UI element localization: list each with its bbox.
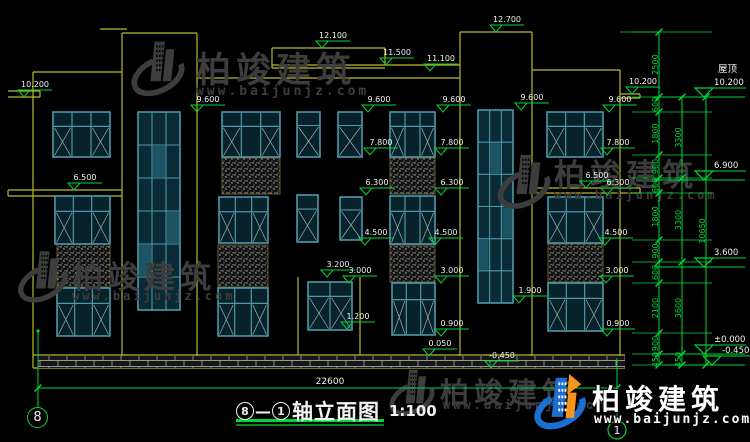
dim-chain-value: 900 xyxy=(651,159,660,174)
title-axis-circle-1: 1 xyxy=(272,402,290,420)
level-marker-triangle xyxy=(360,188,372,195)
level-marker-triangle xyxy=(68,183,80,190)
level-marker-value: 9.600 xyxy=(368,95,391,104)
level-marker-triangle xyxy=(601,188,613,195)
level-marker-triangle xyxy=(359,238,371,245)
level-marker-triangle xyxy=(515,103,527,110)
level-marker-triangle xyxy=(435,329,447,336)
level-marker-value: 6.500 xyxy=(586,171,609,180)
title-scale: 1:100 xyxy=(389,402,437,420)
dim-chain-value: 3300 xyxy=(674,127,683,147)
dim-chain-value: 600 xyxy=(651,97,660,112)
level-marker-value: 3.000 xyxy=(441,266,464,275)
title-text: 轴立面图 xyxy=(292,396,380,426)
level-marker-value: 6.300 xyxy=(441,178,464,187)
level-marker-value: 1.200 xyxy=(347,312,370,321)
level-marker-value: 6.500 xyxy=(74,173,97,182)
level-marker-triangle xyxy=(626,87,638,94)
level-marker-triangle xyxy=(18,90,30,97)
dim-chain-value: 10650 xyxy=(698,218,707,243)
level-marker-value: 0.900 xyxy=(607,319,630,328)
level-marker-triangle xyxy=(435,148,447,155)
level-marker-triangle xyxy=(380,58,392,65)
dim-chain-value: 1800 xyxy=(651,206,660,226)
level-marker-value: 0.900 xyxy=(441,319,464,328)
cad-elevation-canvas: 柏竣建筑www.baijunjz.com 柏竣建筑www.baijunjz.co… xyxy=(0,0,750,442)
level-marker-value: 1.900 xyxy=(519,286,542,295)
axis-grid-bubble-8: 8 xyxy=(27,407,48,428)
level-marker-value: -0.450 xyxy=(489,351,515,360)
dim-chain-value: 2100 xyxy=(651,298,660,318)
level-marker-triangle xyxy=(364,148,376,155)
level-marker-triangle xyxy=(429,238,441,245)
level-marker-value: 7.800 xyxy=(607,138,630,147)
level-marker-value: 3.200 xyxy=(327,260,350,269)
level-marker-value: 3.000 xyxy=(606,266,629,275)
axis-grid-number: 8 xyxy=(33,410,41,425)
dim-chain-value: 900 xyxy=(651,243,660,258)
level-marker-triangle xyxy=(601,329,613,336)
level-marker-value: 4.500 xyxy=(365,228,388,237)
dim-chain-value: 900 xyxy=(651,336,660,351)
level-marker-value: ±0.000 xyxy=(714,335,745,345)
level-marker-triangle xyxy=(321,270,333,277)
level-marker-value: 3.600 xyxy=(714,248,738,258)
level-marker-value: 7.800 xyxy=(441,138,464,147)
level-marker-triangle xyxy=(424,64,436,71)
level-marker-value: 4.500 xyxy=(605,228,628,237)
level-marker-value: 12.100 xyxy=(319,31,347,40)
level-marker-value: 11.500 xyxy=(383,48,411,57)
level-marker-value: 6.900 xyxy=(714,161,738,171)
level-marker-triangle xyxy=(599,238,611,245)
drawing-title: 8 — 1 轴立面图 1:100 xyxy=(236,396,437,426)
title-axis-circle-8: 8 xyxy=(236,402,254,420)
axis-grid-number: 1 xyxy=(614,424,621,437)
level-marker-triangle xyxy=(490,25,502,32)
axis-grid-dot xyxy=(36,329,39,332)
level-marker-triangle xyxy=(437,105,449,112)
level-marker-value: 9.600 xyxy=(197,95,220,104)
level-marker-value: 11.100 xyxy=(427,54,455,63)
level-marker-triangle xyxy=(695,345,713,354)
level-marker-triangle xyxy=(601,148,613,155)
dim-chain-value: 3300 xyxy=(674,210,683,230)
dim-chain-value: 3600 xyxy=(674,298,683,318)
level-marker-value: 6.300 xyxy=(366,178,389,187)
level-marker-value: 3.000 xyxy=(349,266,372,275)
level-marker-triangle xyxy=(341,322,353,329)
level-marker-triangle xyxy=(580,181,592,188)
level-marker-triangle xyxy=(435,188,447,195)
roof-label: 屋顶 xyxy=(718,64,738,75)
level-marker-triangle xyxy=(513,296,525,303)
level-marker-value: 10.200 xyxy=(21,80,49,89)
level-marker-value: -0.450 xyxy=(722,346,749,356)
level-marker-value: 6.300 xyxy=(607,178,630,187)
dim-chain-value: 2500 xyxy=(651,54,660,74)
title-dash: — xyxy=(255,402,271,421)
overall-dim-value: 22600 xyxy=(316,377,345,387)
level-marker-triangle xyxy=(603,105,615,112)
level-marker-triangle xyxy=(362,105,374,112)
level-marker-value: 10.200 xyxy=(714,78,744,88)
level-marker-value: 12.700 xyxy=(493,15,521,24)
level-marker-value: 10.200 xyxy=(629,77,657,86)
level-marker-triangle xyxy=(695,171,713,180)
level-marker-value: 9.600 xyxy=(521,93,544,102)
level-marker-triangle xyxy=(695,88,713,97)
level-marker-value: 9.600 xyxy=(443,95,466,104)
level-marker-value: 9.600 xyxy=(609,95,632,104)
dim-chain-value: 1800 xyxy=(651,123,660,143)
level-marker-triangle xyxy=(600,276,612,283)
level-marker-triangle xyxy=(485,361,497,368)
elevation-annotations: 2500600180090060018009006002100900450330… xyxy=(0,0,750,442)
level-marker-triangle xyxy=(423,349,435,356)
level-marker-value: 7.800 xyxy=(370,138,393,147)
level-marker-triangle xyxy=(191,105,203,112)
level-marker-triangle xyxy=(435,276,447,283)
level-marker-triangle xyxy=(316,41,328,48)
level-marker-triangle xyxy=(343,276,355,283)
level-marker-value: 0.050 xyxy=(429,339,452,348)
level-marker-triangle xyxy=(695,258,713,267)
level-marker-value: 4.500 xyxy=(435,228,458,237)
